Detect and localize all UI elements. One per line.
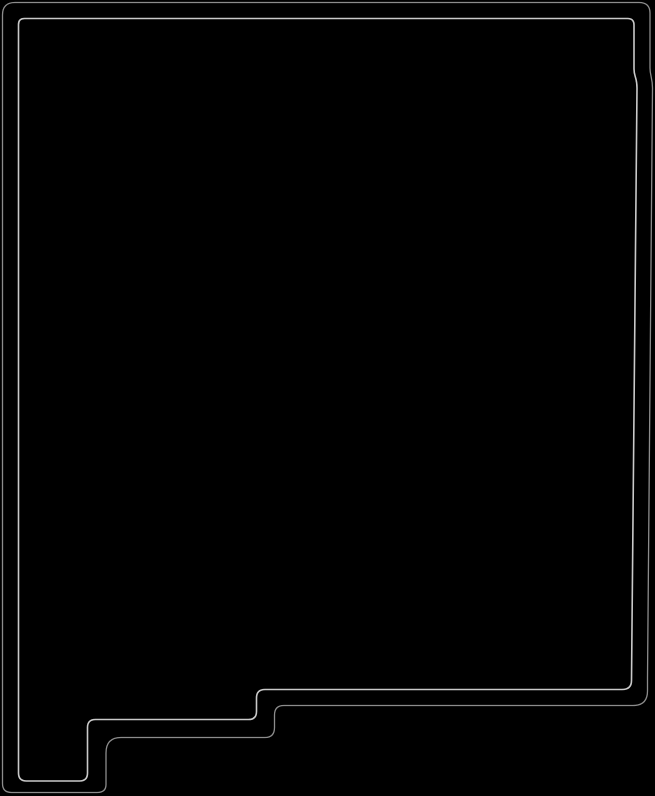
new-mexico-map-figure	[0, 0, 655, 796]
background	[0, 0, 655, 796]
new-mexico-outline-svg	[0, 0, 655, 796]
